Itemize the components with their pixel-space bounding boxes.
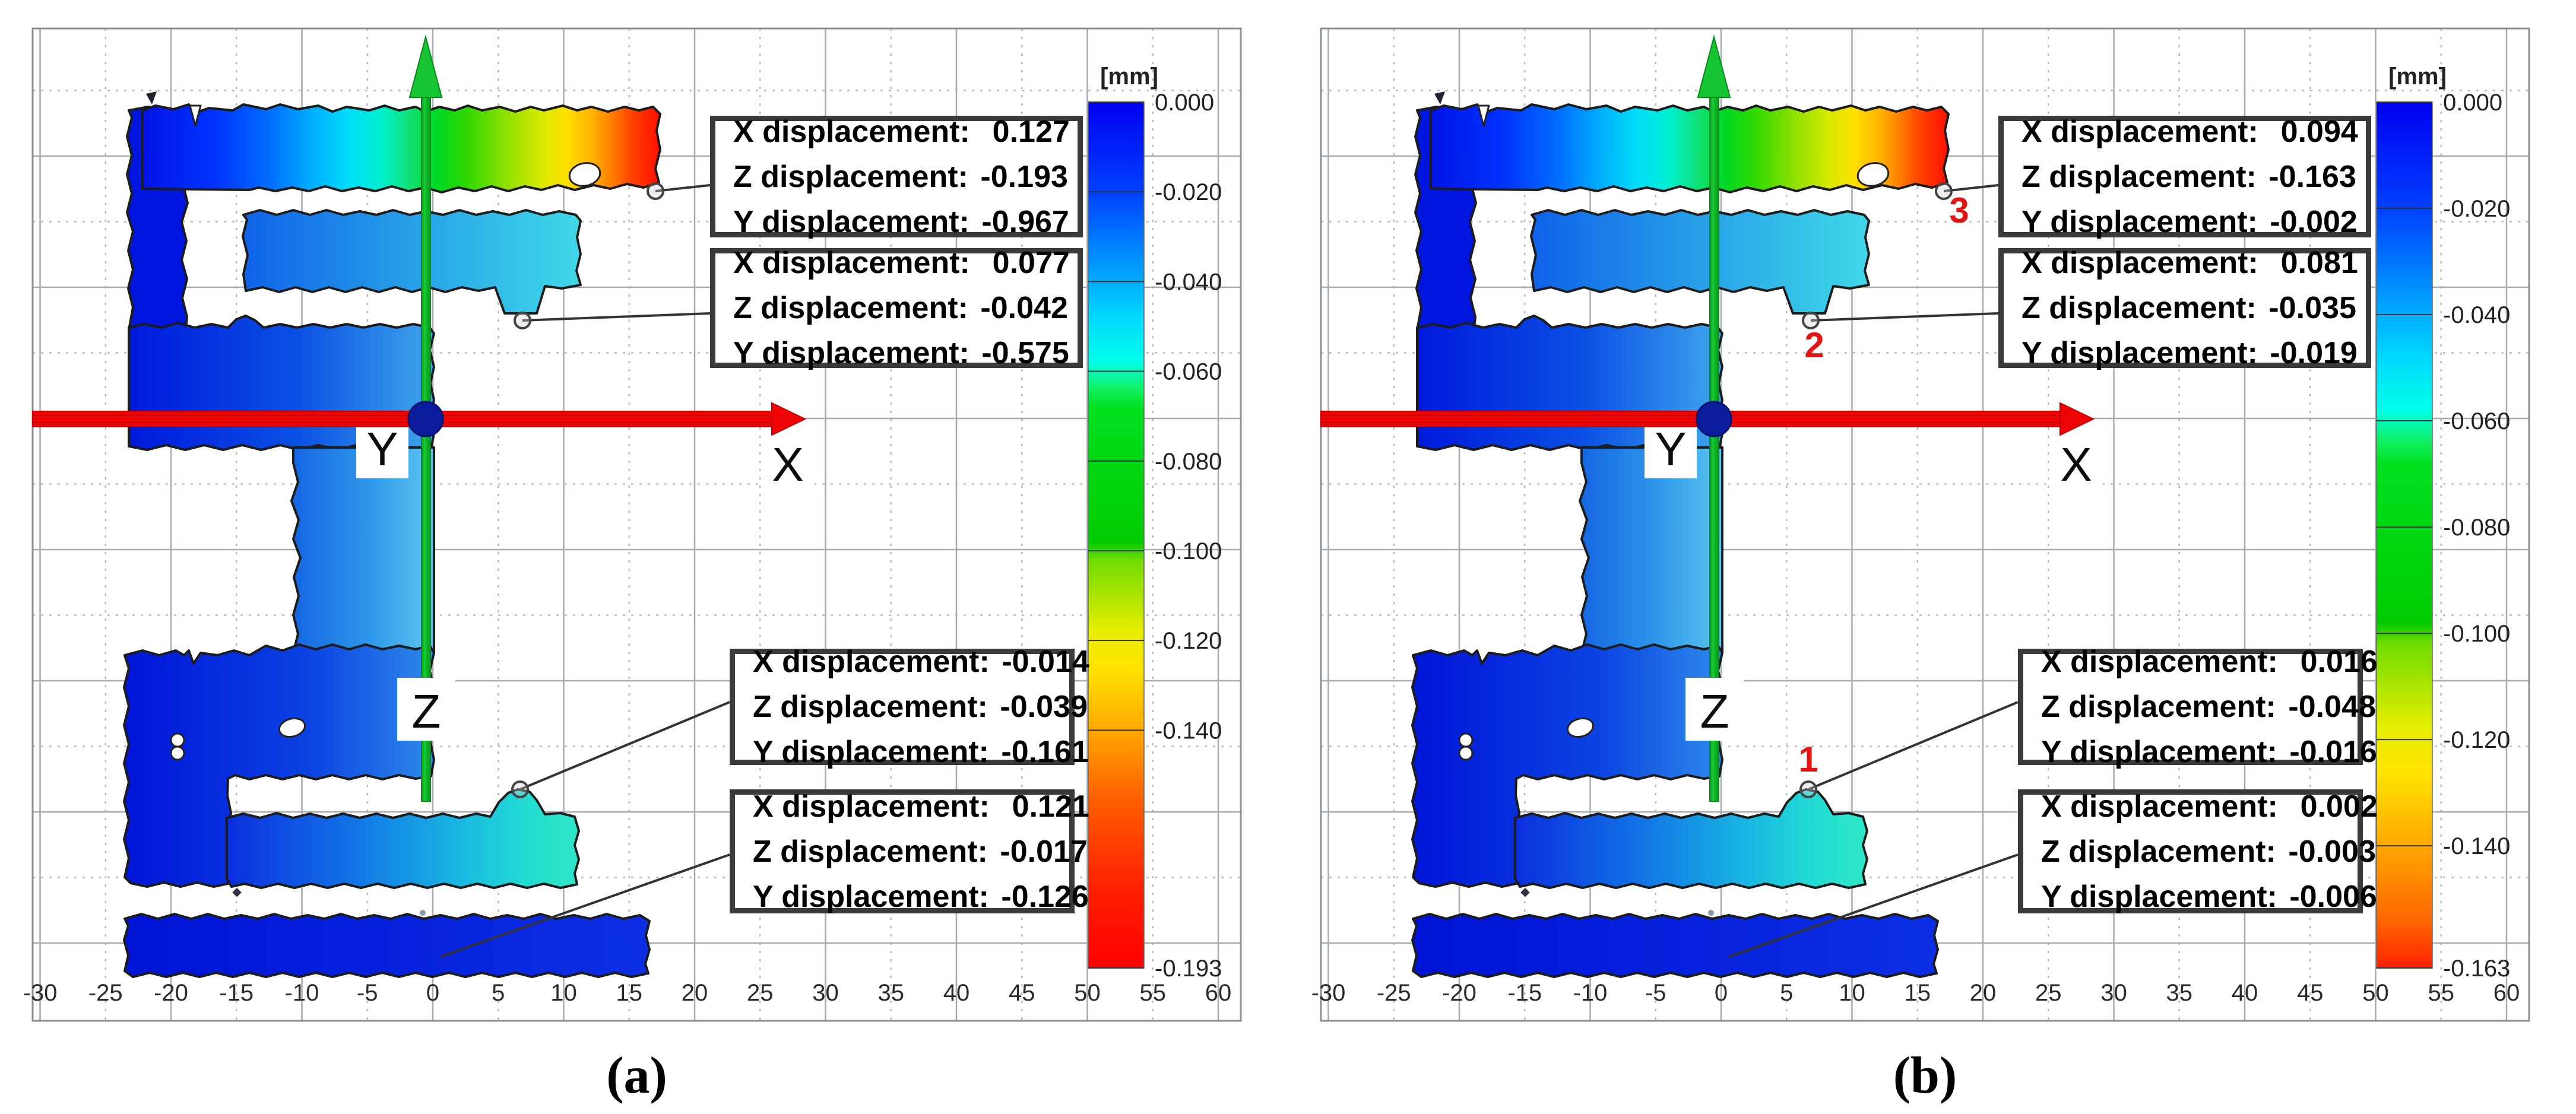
callout-line: X displacement:0.077 <box>733 247 1063 278</box>
callout-value: -0.048 <box>2276 691 2376 722</box>
callout-label: Z displacement: <box>753 836 988 867</box>
callout-label: X displacement: <box>733 116 970 147</box>
panel-b: X displacement:0.094Z displacement:-0.16… <box>1288 0 2576 1114</box>
callout-line: Z displacement:-0.193 <box>733 161 1063 192</box>
callout-line: X displacement:0.094 <box>2021 116 2352 147</box>
displacement-callout-box: X displacement:0.094Z displacement:-0.16… <box>1998 116 2371 237</box>
callout-label: Y displacement: <box>733 207 969 237</box>
callout-line: Z displacement:-0.035 <box>2021 293 2352 323</box>
callout-line: Z displacement:-0.017 <box>753 836 1055 867</box>
callout-label: Y displacement: <box>753 881 989 912</box>
callout-value: 0.127 <box>970 116 1070 147</box>
callout-value: 0.077 <box>970 247 1070 278</box>
callout-label: Z displacement: <box>753 691 988 722</box>
callout-label: Z displacement: <box>2041 836 2276 867</box>
callout-label: Z displacement: <box>2041 691 2276 722</box>
callout-line: Z displacement:-0.003 <box>2041 836 2343 867</box>
callout-label: Y displacement: <box>2041 737 2277 767</box>
callout-label: X displacement: <box>733 247 970 278</box>
callout-value: -0.193 <box>968 161 1068 192</box>
callout-value: -0.016 <box>2277 737 2377 767</box>
callout-label: X displacement: <box>753 646 990 677</box>
callout-line: Z displacement:-0.163 <box>2021 161 2352 192</box>
callout-line: X displacement:0.081 <box>2021 247 2352 278</box>
callout-value: -0.163 <box>2257 161 2356 192</box>
displacement-figure: YXZ-30-25-20-15-10-505101520253035404550… <box>0 0 2576 1114</box>
callout-value: -0.967 <box>969 207 1069 237</box>
callout-label: X displacement: <box>2041 646 2278 677</box>
callout-line: Y displacement:-0.006 <box>2041 881 2343 912</box>
callout-label: X displacement: <box>2041 791 2278 822</box>
callout-value: -0.014 <box>990 646 1089 677</box>
callout-line: X displacement:0.002 <box>2041 791 2343 822</box>
callout-label: Z displacement: <box>2021 293 2257 323</box>
callout-line: Y displacement:-0.575 <box>733 338 1063 369</box>
callout-label: Y displacement: <box>2021 207 2258 237</box>
callout-label: Z displacement: <box>733 293 968 323</box>
callout-label: X displacement: <box>2021 247 2258 278</box>
callout-label: Y displacement: <box>753 737 989 767</box>
callout-value: -0.035 <box>2257 293 2356 323</box>
callout-label: Y displacement: <box>2041 881 2277 912</box>
callout-value: -0.039 <box>988 691 1088 722</box>
callout-line: Y displacement:-0.019 <box>2021 338 2352 369</box>
displacement-callout-box: X displacement:0.002Z displacement:-0.00… <box>2018 789 2363 913</box>
displacement-callout-box: X displacement:0.121Z displacement:-0.01… <box>730 789 1075 913</box>
displacement-callout-box: X displacement:0.016Z displacement:-0.04… <box>2018 649 2363 765</box>
callout-value: 0.081 <box>2258 247 2358 278</box>
panel-b-caption: (b) <box>1321 1046 2529 1106</box>
callout-line: X displacement:0.121 <box>753 791 1055 822</box>
callout-label: X displacement: <box>753 791 990 822</box>
displacement-callout-box: X displacement:-0.014Z displacement:-0.0… <box>730 649 1075 765</box>
callout-label: Z displacement: <box>733 161 968 192</box>
callout-value: 0.016 <box>2278 646 2378 677</box>
callout-value: -0.575 <box>969 338 1069 369</box>
callout-value: -0.003 <box>2276 836 2376 867</box>
callout-label: Y displacement: <box>2021 338 2258 369</box>
callout-value: 0.121 <box>990 791 1089 822</box>
callout-line: Y displacement:-0.126 <box>753 881 1055 912</box>
panel-a-caption: (a) <box>33 1046 1241 1106</box>
callout-value: -0.006 <box>2277 881 2377 912</box>
callout-line: Z displacement:-0.039 <box>753 691 1055 722</box>
callout-value: -0.161 <box>989 737 1089 767</box>
callout-label: Z displacement: <box>2021 161 2257 192</box>
callout-line: Y displacement:-0.967 <box>733 207 1063 237</box>
callout-value: 0.094 <box>2258 116 2358 147</box>
displacement-callout-box: X displacement:0.127Z displacement:-0.19… <box>710 116 1083 237</box>
callout-value: -0.002 <box>2258 207 2358 237</box>
callout-line: Z displacement:-0.048 <box>2041 691 2343 722</box>
displacement-callout-box: X displacement:0.081Z displacement:-0.03… <box>1998 248 2371 368</box>
callout-line: Z displacement:-0.042 <box>733 293 1063 323</box>
callout-value: 0.002 <box>2278 791 2378 822</box>
callout-label: Y displacement: <box>733 338 969 369</box>
callout-line: Y displacement:-0.161 <box>753 737 1055 767</box>
callout-line: Y displacement:-0.002 <box>2021 207 2352 237</box>
callout-value: -0.042 <box>968 293 1068 323</box>
panel-a: X displacement:0.127Z displacement:-0.19… <box>0 0 1288 1114</box>
callout-line: X displacement:-0.014 <box>753 646 1055 677</box>
callout-label: X displacement: <box>2021 116 2258 147</box>
callout-line: X displacement:0.016 <box>2041 646 2343 677</box>
callout-value: -0.126 <box>989 881 1089 912</box>
callout-value: -0.017 <box>988 836 1088 867</box>
callout-line: X displacement:0.127 <box>733 116 1063 147</box>
callout-line: Y displacement:-0.016 <box>2041 737 2343 767</box>
displacement-callout-box: X displacement:0.077Z displacement:-0.04… <box>710 248 1083 368</box>
callout-value: -0.019 <box>2258 338 2358 369</box>
